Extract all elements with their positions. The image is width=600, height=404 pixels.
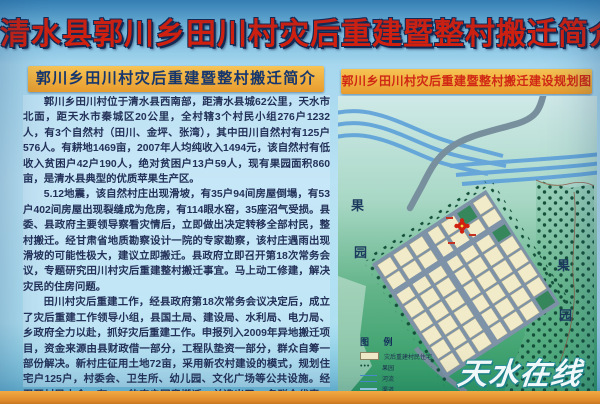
plan-map: 果 园 果 园 图 例 灾后重建村民住宅 ••• 果园 河流 渠道 [338, 96, 597, 392]
map-legend: 图 例 灾后重建村民住宅 ••• 果园 河流 渠道 [360, 335, 462, 395]
intro-paragraph-1: 郭川乡田川村位于清水县西南部，距清水县城62公里，天水市北面，距天水市秦城区20… [23, 95, 330, 187]
orchard-label-right-yuan: 园 [559, 305, 572, 324]
channel-swatch-icon [360, 388, 377, 390]
legend-label: 果园 [382, 363, 394, 372]
legend-label: 河流 [382, 374, 394, 383]
housing-swatch-icon [360, 352, 379, 360]
trees-swatch-icon: ••• [360, 363, 377, 371]
orchard-label-right-guo: 果 [557, 255, 570, 274]
intro-panel: 郭川乡田川村位于清水县西南部，距清水县城62公里，天水市北面，距天水市秦城区20… [23, 95, 330, 387]
intro-paragraph-2: 5.12地震，该自然村庄出现滑坡，有35户94间房屋倒塌，有53户402间房屋出… [23, 187, 330, 295]
intro-paragraph-3: 田川村灾后重建工作，经县政府第18次常务会议决定后，成立了灾后重建工作领导小组，… [23, 295, 330, 404]
legend-row-housing: 灾后重建村民住宅 [360, 351, 462, 361]
orchard-label-left-yuan: 园 [354, 242, 367, 261]
legend-row-river: 河流 [360, 373, 462, 383]
notice-board: 清水县郭川乡田川村灾后重建暨整村搬迁简介 郭川乡田川村灾后重建暨整村搬迁简介 郭… [0, 0, 600, 404]
orchard-label-left-guo: 果 [351, 195, 364, 214]
intro-panel-title: 郭川乡田川村灾后重建暨整村搬迁简介 [28, 66, 324, 92]
watermark: 天水在线 [456, 349, 600, 393]
legend-title: 图 例 [360, 335, 462, 348]
board-main-title: 清水县郭川乡田川村灾后重建暨整村搬迁简介 [0, 9, 600, 53]
river-swatch-icon [360, 375, 377, 382]
legend-label: 灾后重建村民住宅 [384, 352, 432, 361]
map-panel-title: 郭川乡田川村灾后重建暨整村搬迁建设规划图 [341, 69, 592, 94]
legend-row-trees: ••• 果园 [360, 362, 462, 372]
